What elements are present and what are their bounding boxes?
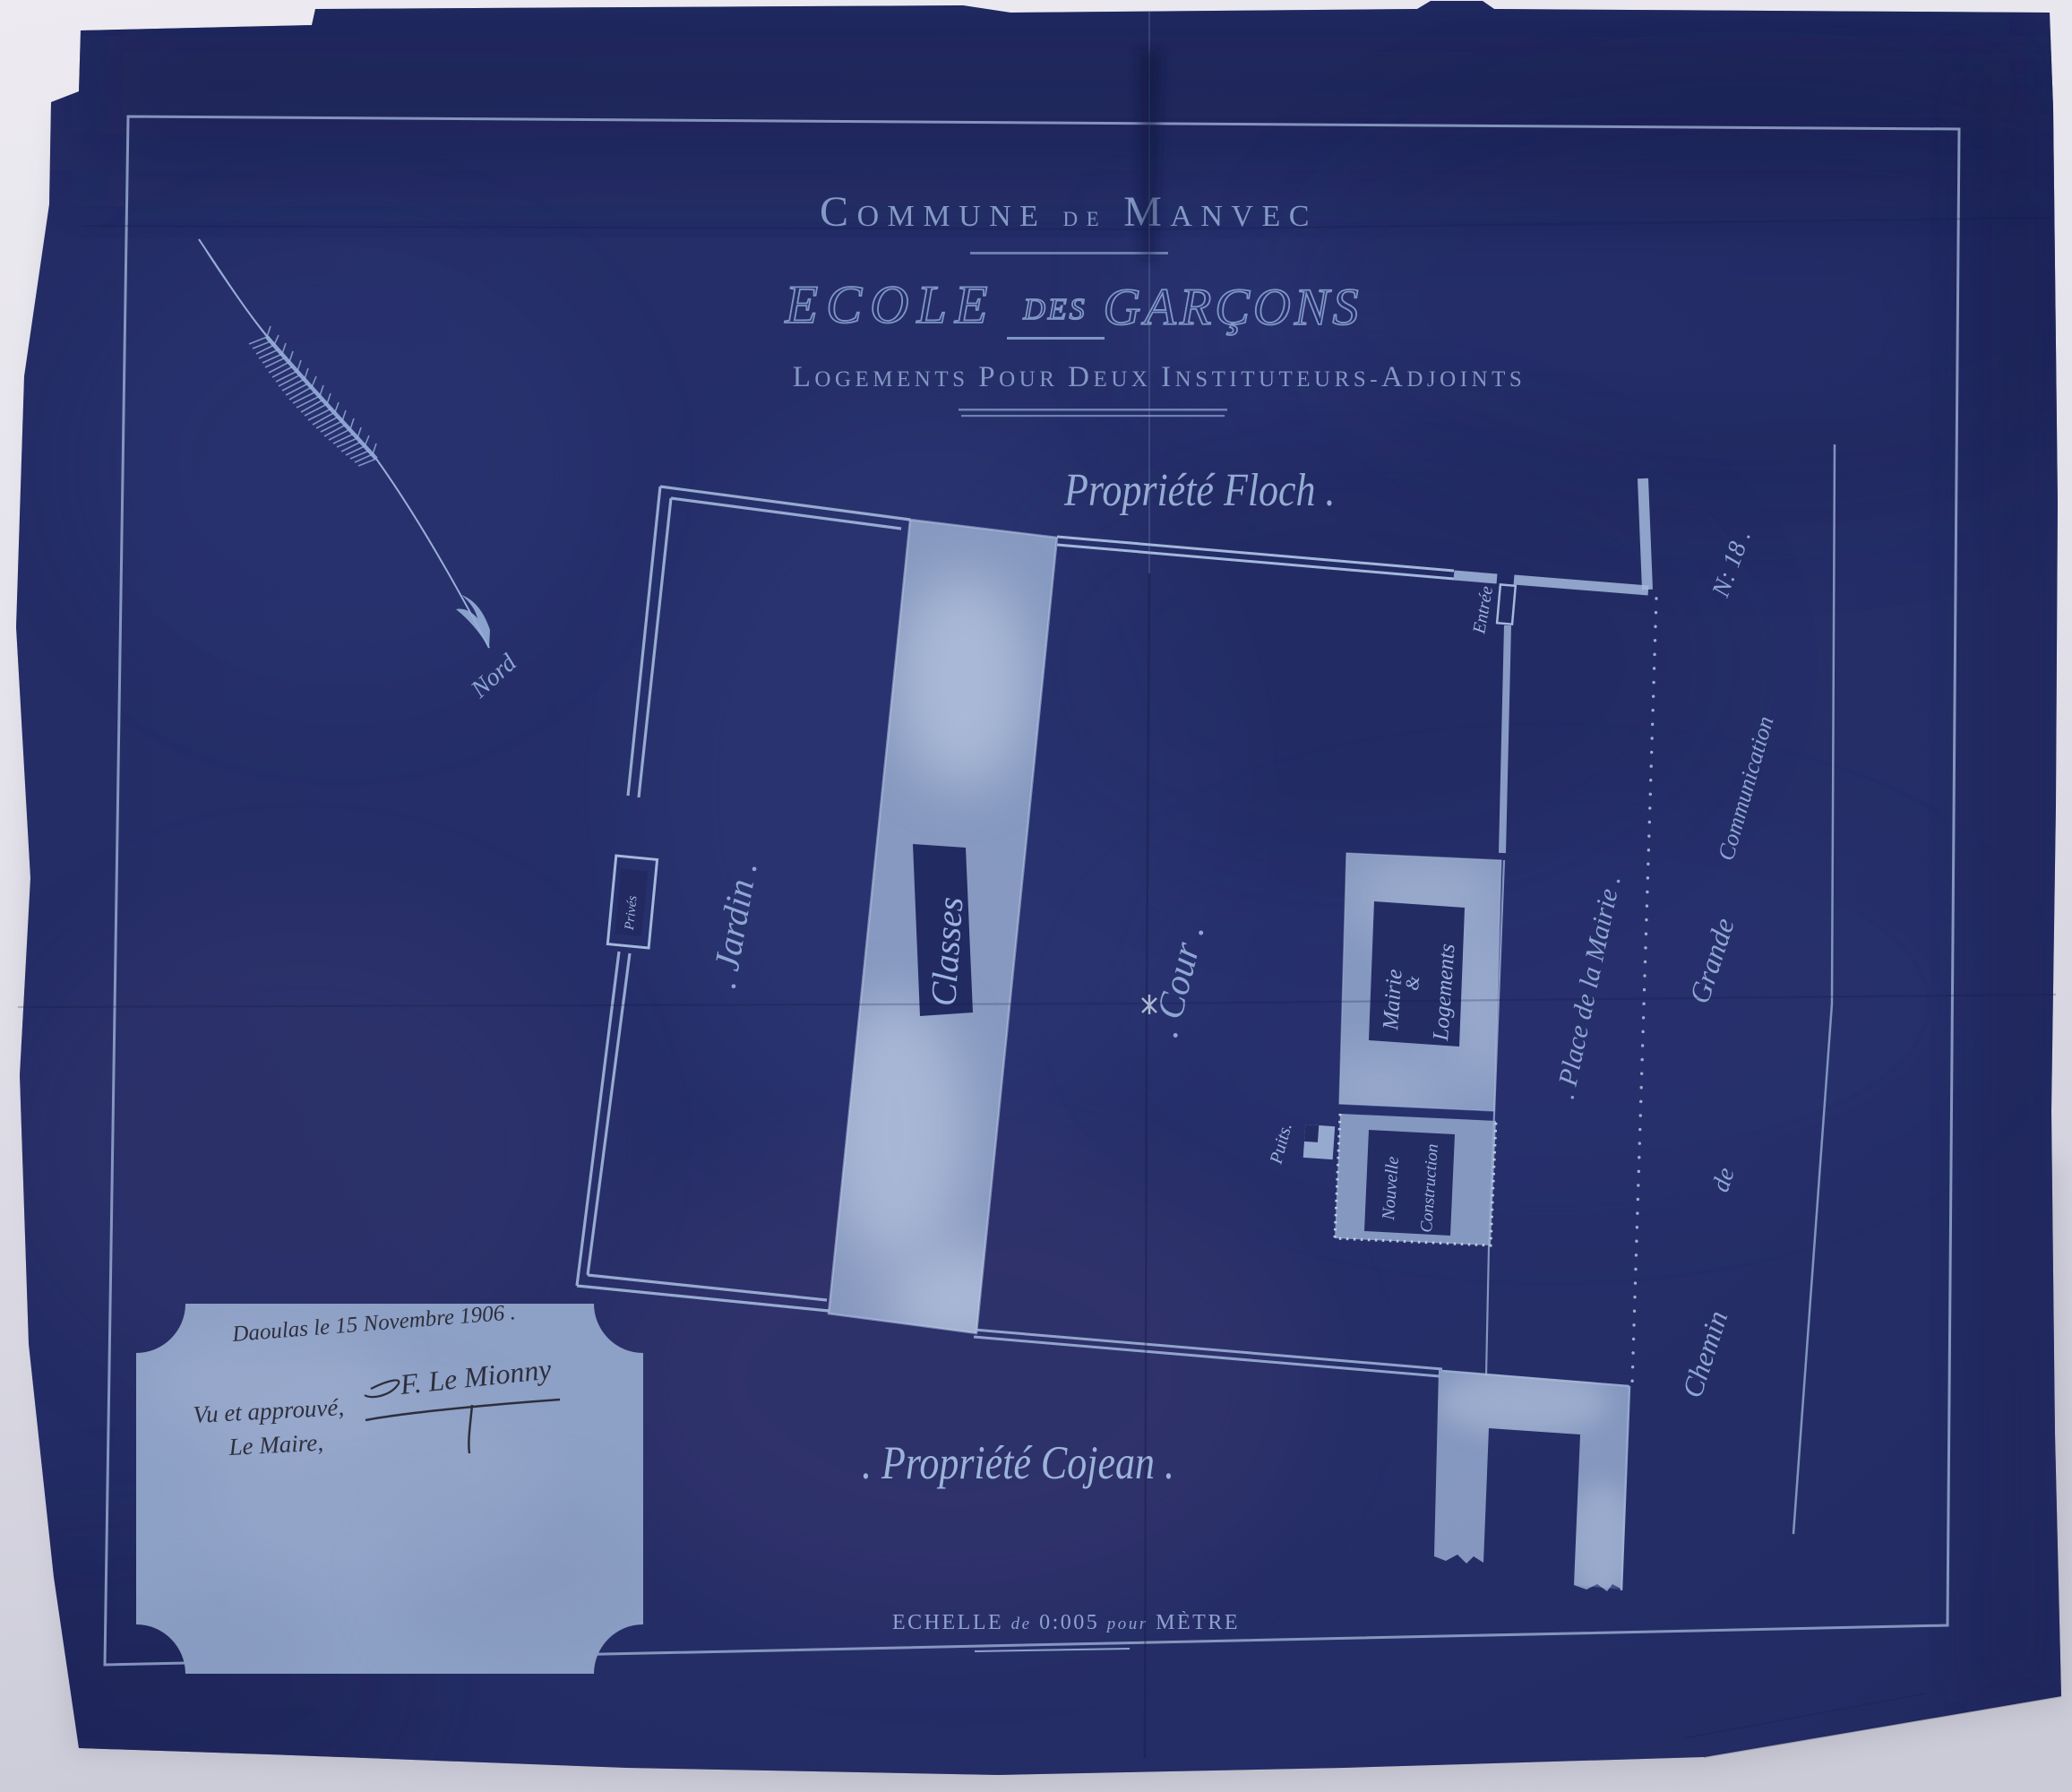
svg-text:&: & bbox=[1401, 975, 1423, 992]
svg-text:Classes: Classes bbox=[923, 896, 970, 1008]
svg-text:GARÇONS: GARÇONS bbox=[1104, 278, 1363, 336]
svg-text:Le Maire,: Le Maire, bbox=[228, 1429, 324, 1461]
svg-text:Propriété Floch .: Propriété Floch . bbox=[1063, 465, 1335, 516]
svg-text:. Propriété Cojean .: . Propriété Cojean . bbox=[862, 1436, 1174, 1489]
svg-text:ECOLE: ECOLE bbox=[784, 275, 995, 334]
svg-text:DES: DES bbox=[1022, 293, 1087, 326]
svg-text:ECHELLE de 0:005 pour MÈTRE: ECHELLE de 0:005 pour MÈTRE bbox=[892, 1611, 1240, 1634]
